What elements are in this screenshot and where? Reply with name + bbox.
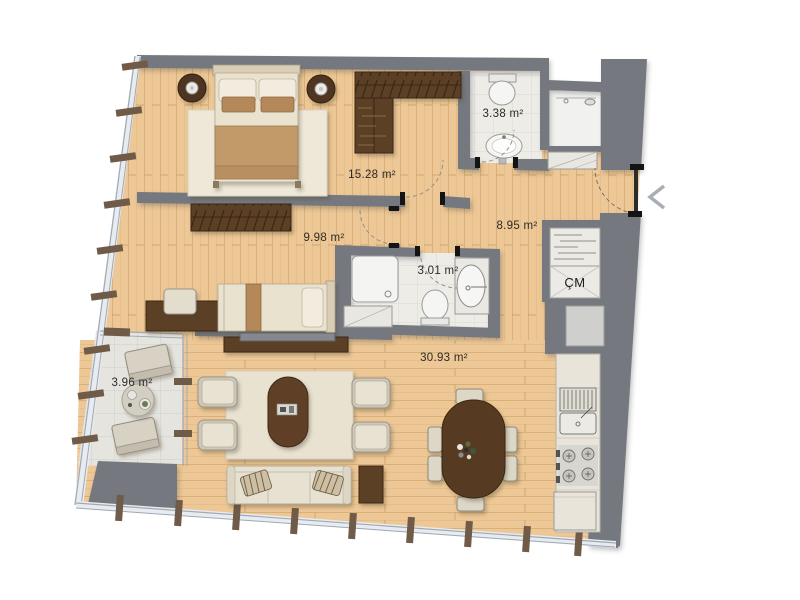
armchair [198, 420, 237, 450]
toilet [489, 74, 516, 105]
wall-shower-bottom [548, 146, 601, 152]
kitchen: ÇM [550, 228, 604, 532]
shower-room-floor [549, 90, 601, 150]
floor-plan-svg: ÇM [0, 0, 800, 600]
armchair [352, 422, 390, 452]
washing-machine-closet: ÇM [550, 266, 600, 298]
tv [240, 333, 335, 341]
sofa [227, 466, 351, 504]
wall-corridor-stub [443, 196, 470, 209]
double-bed [213, 65, 301, 188]
shower-head-icon [585, 99, 595, 105]
armchair [198, 377, 237, 407]
toilet [421, 290, 449, 325]
floor-plan-page: ÇM [0, 0, 800, 600]
shelf-closet [550, 228, 600, 266]
wall-bath1-right [540, 58, 549, 150]
wall-bath1-bottom-right [514, 159, 549, 171]
desk-chair [164, 289, 196, 314]
area-label-living-room: 30.93 m² [420, 352, 468, 364]
washing-machine-label: ÇM [564, 275, 585, 290]
kitchen-counter [554, 354, 600, 532]
dining-chair [457, 497, 484, 511]
fridge [566, 306, 604, 346]
tv-console [224, 333, 348, 352]
entrance-chevron-icon[interactable] [650, 186, 664, 208]
area-label-balcony: 3.96 m² [111, 377, 152, 389]
side-table [359, 466, 383, 503]
armchair [352, 378, 390, 408]
lower-cabinet [554, 492, 596, 530]
shoe-cabinet [548, 152, 597, 169]
wall-shower-top [548, 80, 601, 92]
stove [556, 445, 598, 486]
area-label-bedroom-2: 9.98 m² [303, 232, 344, 244]
coffee-table [268, 377, 308, 447]
wall-top-right-block [601, 59, 647, 170]
nightstand-left [178, 74, 206, 102]
area-label-hall: 8.95 m² [496, 220, 537, 232]
dining-chair [428, 456, 442, 481]
wardrobe-strip [191, 204, 291, 231]
entry-door-leaf [634, 168, 638, 214]
washbasin-counter [455, 258, 489, 314]
dining-chair [428, 427, 442, 452]
single-bed [218, 281, 335, 333]
shower-tray [352, 256, 398, 302]
kitchen-sink [560, 388, 596, 434]
wall-balcony-bottom-block [88, 461, 177, 508]
area-label-bathroom-2: 3.01 m² [417, 265, 458, 277]
area-label-bathroom-1: 3.38 m² [482, 108, 523, 120]
area-label-bedroom-1: 15.28 m² [348, 169, 396, 181]
bath-cabinet [344, 306, 392, 327]
nightstand-right [307, 75, 335, 103]
wall-bath2-right [488, 249, 500, 333]
